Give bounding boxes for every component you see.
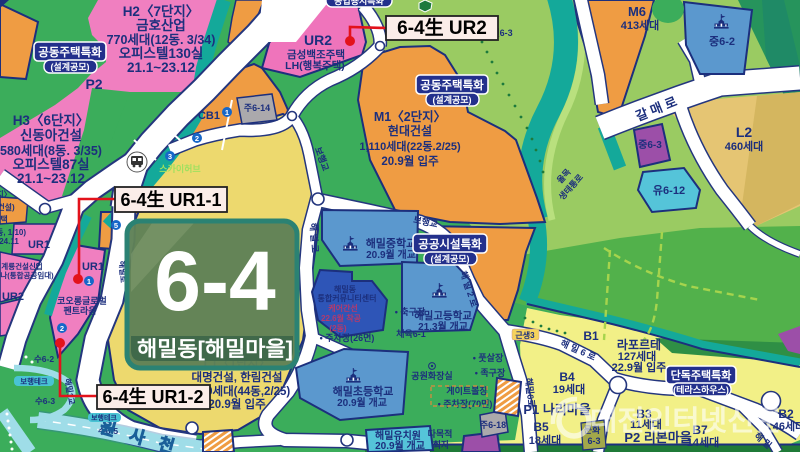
svg-text:(설계공모): (설계공모) <box>432 94 471 105</box>
svg-text:20.9월 입주: 20.9월 입주 <box>208 397 266 411</box>
svg-text:(2동): (2동) <box>329 324 346 333</box>
svg-text:19세대: 19세대 <box>553 382 585 396</box>
svg-text:3: 3 <box>168 152 172 161</box>
svg-text:• 주차장(70면): • 주차장(70면) <box>438 398 493 409</box>
svg-text:공동주택특화: 공동주택특화 <box>420 78 484 92</box>
svg-text:6-3: 6-3 <box>587 436 600 446</box>
svg-text:20.9월 입주: 20.9월 입주 <box>381 154 439 168</box>
svg-text:18세대: 18세대 <box>529 433 561 447</box>
svg-text:22.9월 입주: 22.9월 입주 <box>612 360 667 374</box>
svg-text:금호산업: 금호산업 <box>136 17 186 33</box>
svg-text:(설계공모): (설계공모) <box>50 61 89 72</box>
svg-text:택: 택 <box>0 214 7 224</box>
svg-text:수6-2: 수6-2 <box>34 354 54 364</box>
svg-text:6-4: 6-4 <box>154 234 276 328</box>
svg-text:공공시설특화: 공공시설특화 <box>418 237 482 251</box>
svg-text:게이트볼장: 게이트볼장 <box>446 385 488 396</box>
svg-text:단독주택특화: 단독주택특화 <box>671 368 732 382</box>
svg-text:UR1: UR1 <box>82 261 104 273</box>
svg-text:6-4生 UR1-1: 6-4生 UR1-1 <box>120 189 221 210</box>
svg-text:케어간선: 케어간선 <box>328 303 357 313</box>
svg-text:중6-3: 중6-3 <box>638 139 662 151</box>
svg-text:코오롱글로벌: 코오롱글로벌 <box>57 295 107 306</box>
svg-text:계룡건설신업: 계룡건설신업 <box>1 261 42 271</box>
svg-text:24.11: 24.11 <box>0 237 19 246</box>
svg-text:• 족구장: • 족구장 <box>475 367 506 378</box>
svg-text:H3〈6단지〉: H3〈6단지〉 <box>13 112 90 128</box>
svg-text:770세대(12동. 3/34): 770세대(12동. 3/34) <box>107 32 216 47</box>
svg-text:오피스텔130실: 오피스텔130실 <box>119 46 204 61</box>
svg-text:H2〈7단지〉: H2〈7단지〉 <box>123 3 200 19</box>
svg-text:UR2: UR2 <box>304 32 332 48</box>
svg-text:1: 1 <box>225 108 229 117</box>
svg-text:(설계공모): (설계공모) <box>430 253 469 264</box>
svg-text:해밀초등학교: 해밀초등학교 <box>333 384 394 398</box>
svg-text:신동아건설: 신동아건설 <box>20 127 82 143</box>
svg-text:20.9월 개교: 20.9월 개교 <box>375 439 425 452</box>
svg-text:스카이허브: 스카이허브 <box>159 163 201 174</box>
svg-text:6-4生 UR1-2: 6-4生 UR1-2 <box>102 386 203 407</box>
svg-text:B5: B5 <box>533 420 549 434</box>
svg-text:오피스텔87실: 오피스텔87실 <box>12 157 89 172</box>
svg-text:UR2: UR2 <box>2 291 24 303</box>
svg-text:근생3: 근생3 <box>515 330 535 340</box>
svg-text:공원화장실: 공원화장실 <box>411 370 452 381</box>
svg-text:1: 1 <box>87 277 91 286</box>
svg-text:20.9월 개교: 20.9월 개교 <box>337 396 387 409</box>
svg-text:UR1: UR1 <box>28 239 50 251</box>
svg-text:5: 5 <box>114 221 118 230</box>
svg-text:공업용지특화: 공업용지특화 <box>334 0 384 6</box>
svg-text:라포르테: 라포르테 <box>617 337 661 352</box>
svg-text:CB1: CB1 <box>198 110 220 122</box>
svg-text:해밀동: 해밀동 <box>334 284 357 294</box>
svg-text:해 밀 로: 해 밀 로 <box>308 222 321 253</box>
svg-text:21.1~23.12: 21.1~23.12 <box>17 171 85 186</box>
svg-text:M6: M6 <box>628 4 646 19</box>
svg-text:보행테크: 보행테크 <box>20 376 48 386</box>
svg-text:지〉: 지〉 <box>0 189 12 199</box>
svg-text:413세대: 413세대 <box>621 18 660 32</box>
svg-text:2: 2 <box>60 324 64 333</box>
svg-text:22.6월 착공: 22.6월 착공 <box>321 313 362 323</box>
svg-text:해밀동[해밀마을]: 해밀동[해밀마을] <box>137 338 293 361</box>
svg-text:대전인터넷신문: 대전인터넷신문 <box>590 405 782 436</box>
svg-text:460세대: 460세대 <box>725 139 764 153</box>
svg-text:2: 2 <box>195 134 199 143</box>
svg-text:나(통합공공임대): 나(통합공공임대) <box>0 270 54 280</box>
svg-text:21.1~23.12: 21.1~23.12 <box>127 60 195 75</box>
svg-text:L2: L2 <box>736 124 753 140</box>
svg-text:해밀중학교: 해밀중학교 <box>366 236 417 250</box>
svg-text:대명건설, 한림건설: 대명건설, 한림건설 <box>191 370 282 384</box>
svg-text:공동주택특화: 공동주택특화 <box>38 45 102 59</box>
svg-text:중6-2: 중6-2 <box>709 35 735 48</box>
svg-text:580세대(8동. 3/35): 580세대(8동. 3/35) <box>0 143 102 158</box>
svg-text:보행테크: 보행테크 <box>91 413 117 422</box>
svg-text:6-4生 UR2: 6-4生 UR2 <box>397 16 487 39</box>
svg-text:LH(행복주택): LH(행복주택) <box>285 59 345 72</box>
svg-text:유6-12: 유6-12 <box>653 184 685 197</box>
svg-text:건설): 건설) <box>0 202 15 212</box>
svg-text:20.9월 개교: 20.9월 개교 <box>366 248 416 261</box>
svg-text:다목적: 다목적 <box>428 428 453 439</box>
svg-text:• 축구장: • 축구장 <box>395 306 426 317</box>
svg-text:주6-14: 주6-14 <box>244 103 270 113</box>
svg-text:펜트라움: 펜트라움 <box>63 305 96 316</box>
svg-text:B4: B4 <box>559 370 575 384</box>
svg-text:127세대: 127세대 <box>618 349 657 363</box>
svg-text:• 풋살장: • 풋살장 <box>473 352 504 363</box>
svg-text:M1〈2단지〉: M1〈2단지〉 <box>374 109 446 124</box>
svg-text:회자: 회자 <box>433 439 450 450</box>
svg-text:체육6-1: 체육6-1 <box>396 328 426 339</box>
svg-text:주6-18: 주6-18 <box>480 420 506 430</box>
svg-text:동, 1/10): 동, 1/10) <box>0 228 26 237</box>
svg-text:(테라스하우스): (테라스하우스) <box>673 384 729 395</box>
svg-text:수6-3: 수6-3 <box>35 396 55 406</box>
svg-text:• 주차장(26면): • 주차장(26면) <box>320 332 375 343</box>
svg-text:P2: P2 <box>85 76 102 92</box>
svg-text:B1: B1 <box>583 329 599 343</box>
svg-text:통합커뮤니티센터: 통합커뮤니티센터 <box>318 293 377 303</box>
svg-text:현대건설: 현대건설 <box>388 123 432 138</box>
svg-text:1,110세대(22동.2/25): 1,110세대(22동.2/25) <box>359 139 461 153</box>
